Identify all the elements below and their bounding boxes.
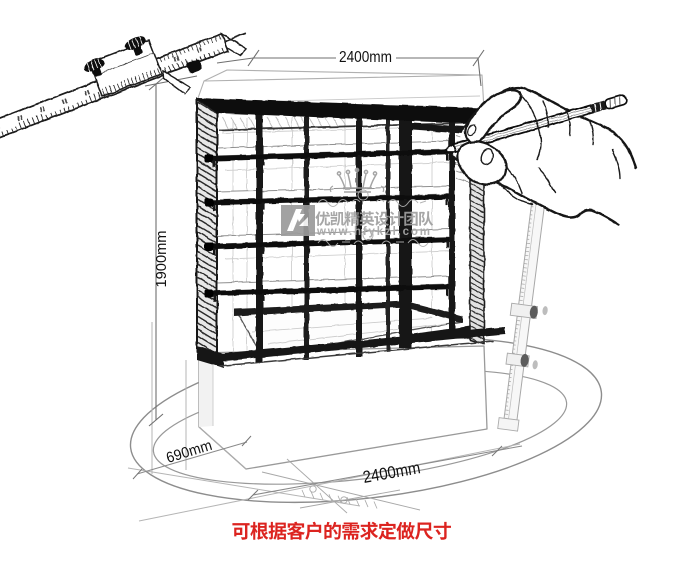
svg-text:2400mm: 2400mm [339, 49, 392, 66]
svg-text:1900mm: 1900mm [153, 231, 170, 288]
